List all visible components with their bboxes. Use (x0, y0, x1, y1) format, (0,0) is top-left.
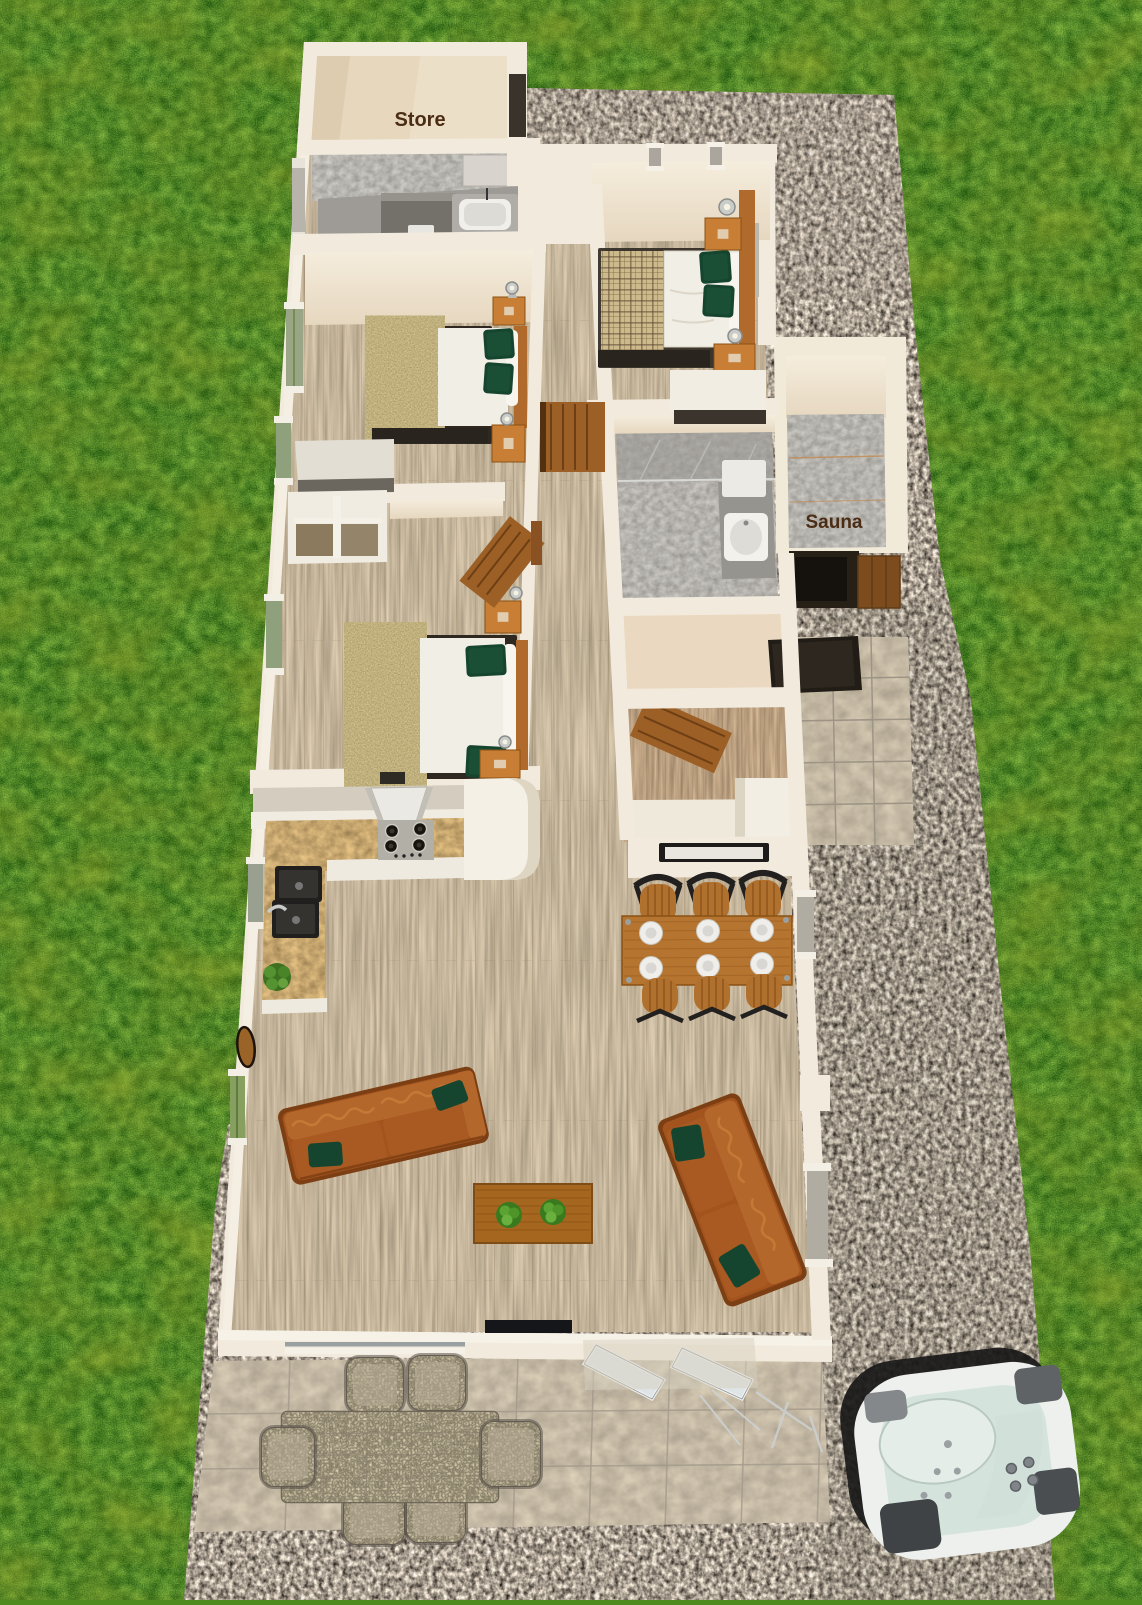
svg-text:Store: Store (394, 109, 445, 131)
svg-text:Sauna: Sauna (805, 512, 862, 533)
